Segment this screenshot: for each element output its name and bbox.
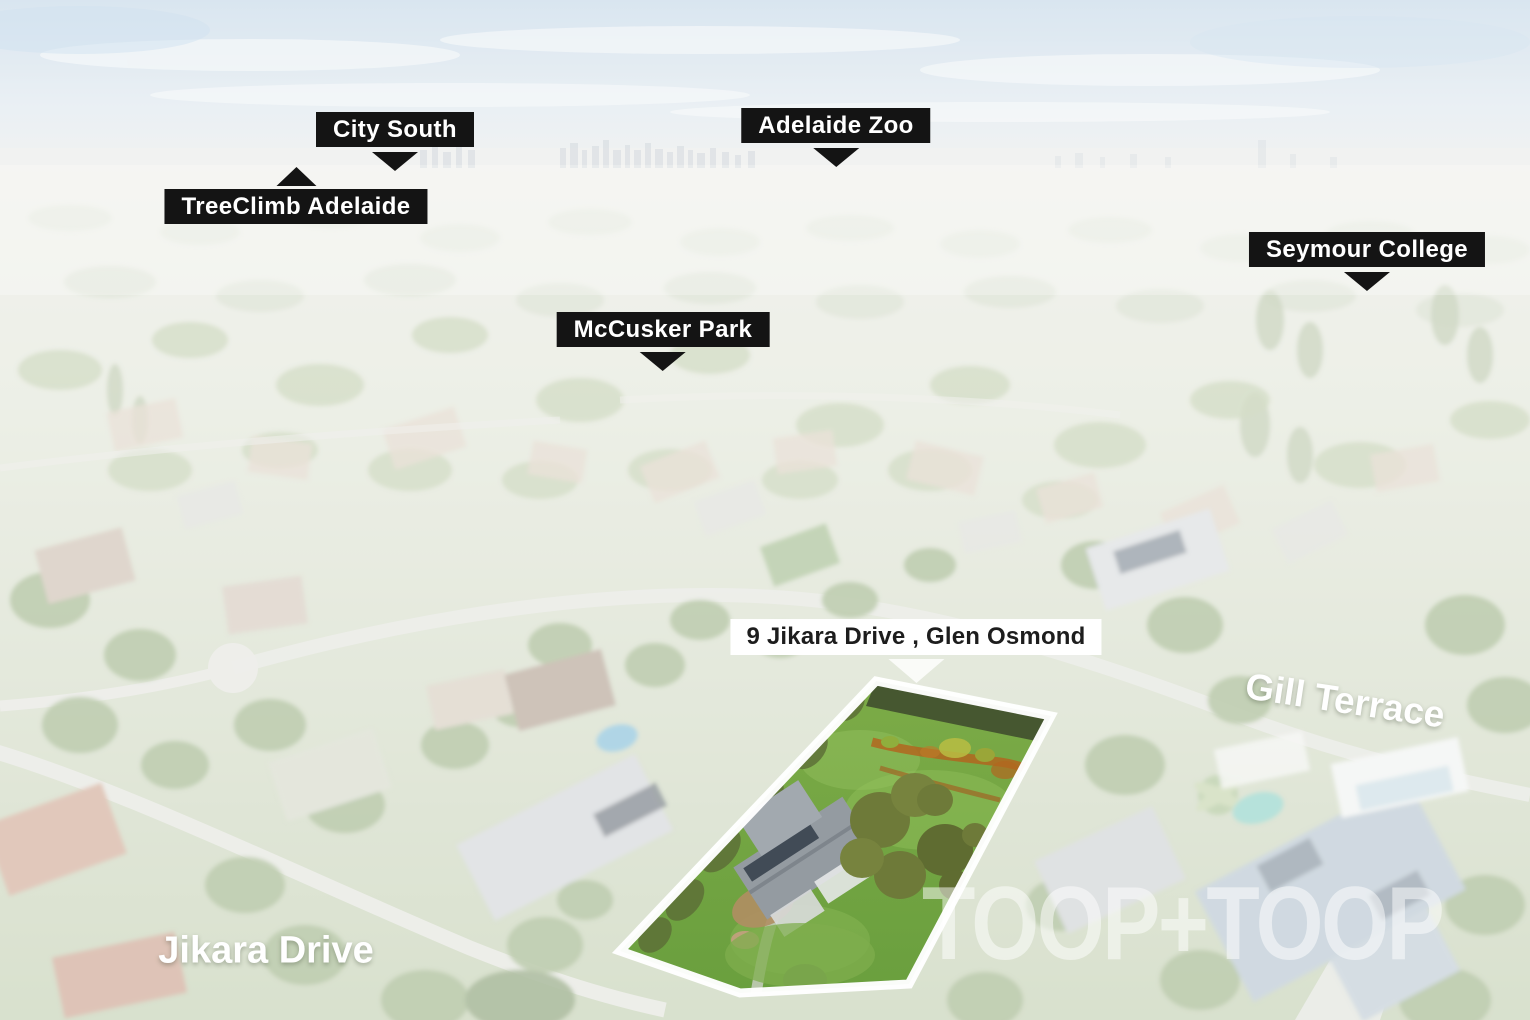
arrow-down-icon bbox=[888, 659, 944, 683]
arrow-up-icon bbox=[276, 167, 316, 186]
arrow-down-icon bbox=[640, 352, 686, 371]
poi-label: McCusker Park bbox=[557, 312, 770, 347]
poi-label: City South bbox=[316, 112, 474, 147]
property-address-label: 9 Jikara Drive , Glen Osmond bbox=[730, 619, 1101, 655]
poi-marker-mccusker-park: McCusker Park bbox=[557, 312, 770, 371]
arrow-down-icon bbox=[813, 148, 859, 167]
poi-marker-seymour-college: Seymour College bbox=[1249, 232, 1485, 291]
watermark: TOOP+TOOP bbox=[922, 872, 1442, 976]
property-address-callout: 9 Jikara Drive , Glen Osmond bbox=[730, 619, 1101, 683]
poi-label: Adelaide Zoo bbox=[741, 108, 930, 143]
aerial-property-photo: City South Adelaide Zoo TreeClimb Adelai… bbox=[0, 0, 1530, 1020]
street-label-jikara-drive: Jikara Drive bbox=[158, 930, 374, 973]
poi-marker-adelaide-zoo: Adelaide Zoo bbox=[741, 108, 930, 167]
poi-marker-treeclimb-adelaide: TreeClimb Adelaide bbox=[164, 167, 427, 224]
poi-marker-city-south: City South bbox=[316, 112, 474, 171]
poi-label: Seymour College bbox=[1249, 232, 1485, 267]
poi-label: TreeClimb Adelaide bbox=[164, 189, 427, 224]
arrow-down-icon bbox=[1344, 272, 1390, 291]
